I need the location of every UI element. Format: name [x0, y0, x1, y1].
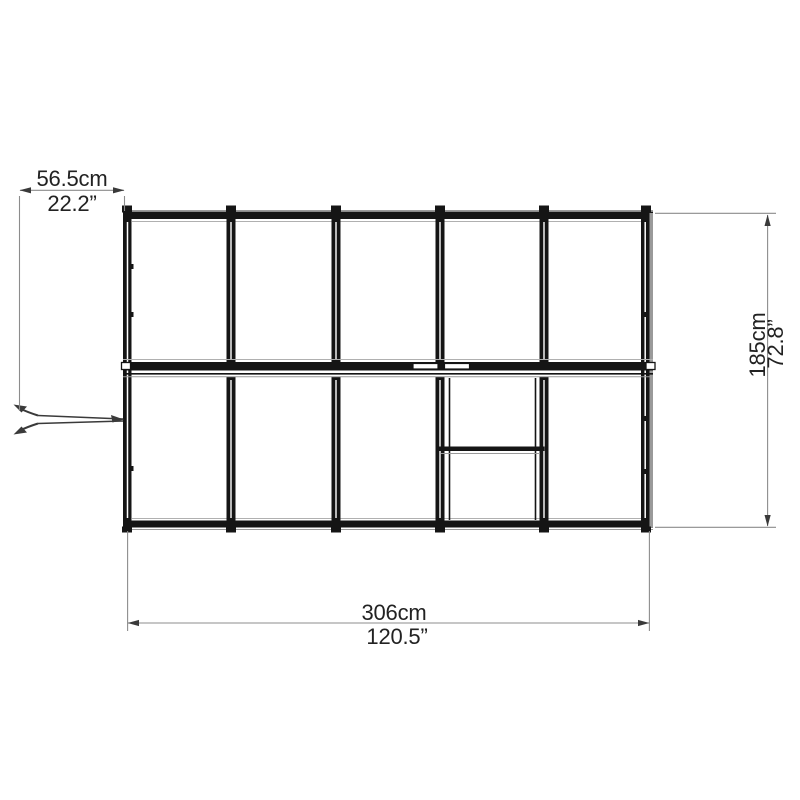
dim-right-imperial-label: 72.8” [764, 274, 788, 414]
greenhouse-frame [122, 206, 656, 533]
door-handle [14, 405, 125, 435]
arrow-right-icon [638, 620, 649, 626]
ridge-beam [122, 360, 656, 377]
dim-bottom-imperial-label: 120.5” [327, 625, 467, 649]
arrow-left-icon [128, 620, 139, 626]
roof-vent-window [413, 364, 545, 521]
greenhouse-top-view-drawing [0, 0, 800, 800]
arrow-up-icon [765, 215, 771, 227]
frame-top-rail [123, 211, 653, 222]
dim-bottom-metric-label: 306cm [324, 601, 464, 625]
dimension-top [20, 187, 125, 411]
mullions-upper [227, 219, 549, 363]
frame-bottom-rail [123, 519, 653, 530]
dim-top-imperial-label: 22.2” [2, 192, 142, 216]
dim-top-metric-label: 56.5cm [2, 167, 142, 191]
arrow-down-icon [765, 515, 771, 527]
diagram-canvas: 56.5cm 22.2” 185cm 72.8” 306cm 120.5” [0, 0, 800, 800]
